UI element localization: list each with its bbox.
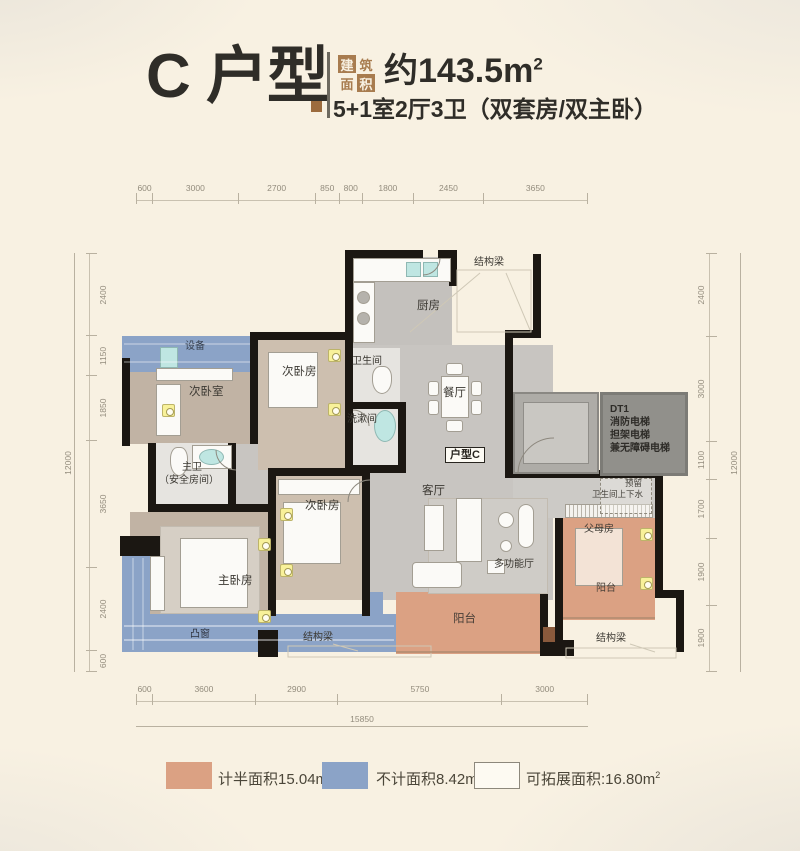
elevator-car — [523, 402, 589, 464]
legend-text: 不计面积8.42m — [376, 771, 478, 788]
dim-value: 1900 — [696, 629, 706, 648]
dining-chair — [471, 381, 482, 396]
room-label-living: 客厅 — [422, 485, 445, 498]
elevator-type: 担架电梯 — [610, 429, 685, 442]
sofa-horizontal — [412, 562, 462, 588]
unit-tag: 户型C — [445, 447, 485, 463]
wall — [676, 590, 684, 652]
dim-value: 5750 — [338, 684, 501, 694]
layout-subtitle: 5+1室2厅3卫（双套房/双主卧） — [333, 97, 657, 122]
kitchen-sink-right — [423, 262, 438, 277]
wardrobe-bedroom-left — [156, 368, 233, 381]
room-label-parents: 父母房 — [584, 524, 614, 535]
wall — [268, 468, 370, 476]
legend-swatch-half-area — [166, 762, 212, 789]
washbasin-washroom — [374, 410, 396, 442]
area-number: 约143.5m — [384, 52, 533, 90]
wall — [540, 640, 574, 656]
equipment-ac-unit — [160, 347, 178, 368]
electrical-marker — [280, 564, 293, 577]
room-label-bedroom-top: 次卧房 — [282, 366, 317, 379]
built-area-value: 约143.5m2 — [384, 54, 543, 88]
legend-label-excluded-area: 不计面积8.42m2 — [376, 768, 483, 789]
area-badge: 建 筑 面 积 — [338, 55, 375, 92]
dresser-master-bedroom — [150, 556, 165, 611]
dining-chair — [428, 381, 439, 396]
wall — [148, 443, 156, 511]
wall — [250, 332, 350, 340]
dim-value: 1100 — [696, 451, 706, 469]
dimension-total-bottom: 15850 — [136, 726, 588, 727]
dim-total-value: 12000 — [63, 451, 73, 475]
dim-total-value: 12000 — [729, 451, 739, 475]
wall — [398, 402, 406, 472]
badge-char: 筑 — [357, 55, 375, 73]
bed-bedroom-top — [268, 352, 318, 408]
wall — [362, 468, 370, 616]
title-divider — [327, 52, 330, 118]
dim-value: 2400 — [696, 285, 706, 304]
dim-value: 2400 — [98, 599, 108, 618]
dim-value: 850 — [316, 183, 339, 193]
label-beam-bottom-left: 结构梁 — [303, 632, 333, 643]
dim-value: 1700 — [696, 500, 706, 519]
dim-value: 1850 — [98, 399, 108, 418]
room-label-master-bath: 主卫 — [182, 462, 202, 473]
lounge-chair — [518, 504, 534, 548]
side-table — [498, 512, 514, 528]
label-bay-window: 凸窗 — [190, 629, 210, 640]
dim-value: 2700 — [239, 183, 315, 193]
dining-chair — [428, 400, 439, 415]
dim-value: 2400 — [98, 285, 108, 304]
area-superscript: 2 — [533, 55, 542, 74]
stove-burner — [357, 291, 370, 304]
electrical-marker — [280, 508, 293, 521]
kitchen-sink-left — [406, 262, 421, 277]
legend-swatch-excluded-area — [322, 762, 368, 789]
wall — [555, 518, 563, 642]
electrical-marker — [162, 404, 175, 417]
electrical-marker — [328, 403, 341, 416]
bed-parents-room — [575, 528, 623, 586]
label-reserved-line2: 卫生间上下水 — [592, 490, 643, 499]
wall — [533, 254, 541, 338]
dim-value: 3650 — [484, 183, 587, 193]
electrical-marker — [328, 349, 341, 362]
dining-chair — [446, 420, 463, 432]
room-label-multi-hall: 多功能厅 — [494, 559, 534, 570]
wall — [505, 330, 513, 396]
dim-value: 1800 — [363, 183, 413, 193]
sofa-vertical — [456, 498, 482, 562]
electrical-marker — [640, 577, 653, 590]
room-label-equipment: 设备 — [185, 341, 205, 352]
legend-text: 可拓展面积:16.80m — [526, 771, 655, 788]
legend-sup: 2 — [655, 770, 660, 780]
side-table — [500, 540, 512, 552]
dining-chair — [471, 400, 482, 415]
unit-name: C 户型 — [146, 42, 328, 111]
washbasin-master-bath — [199, 449, 224, 465]
label-beam-top: 结构梁 — [474, 257, 504, 268]
dimension-total-left: 12000 — [74, 253, 75, 672]
room-label-master-bath-sub: （安全房间） — [159, 475, 219, 486]
elevator-info-box: DT1 消防电梯 担架电梯 兼无障碍电梯 — [600, 392, 688, 476]
dim-value: 3000 — [696, 379, 706, 398]
elevator-id: DT1 — [610, 403, 685, 416]
room-label-washroom: 洗漱间 — [347, 414, 377, 425]
dim-value: 600 — [137, 183, 152, 193]
wardrobe-bedroom-mid — [278, 479, 360, 495]
room-label-dining: 餐厅 — [443, 387, 466, 400]
dining-chair — [446, 363, 463, 375]
dim-total-value: 15850 — [136, 714, 588, 724]
label-balcony-right: 阳台 — [596, 583, 616, 594]
elevator-type: 兼无障碍电梯 — [610, 442, 685, 455]
dim-value: 1150 — [98, 347, 108, 365]
label-reserved-line1: 预留 — [625, 479, 642, 488]
dim-value: 3000 — [502, 684, 587, 694]
tv-cabinet — [424, 505, 444, 551]
room-label-bathroom: 卫生间 — [352, 356, 382, 367]
dimension-column-right: 2400 3000 1100 1700 1900 1900 — [706, 253, 717, 672]
wall — [122, 358, 130, 446]
label-beam-bottom-right: 结构梁 — [596, 633, 626, 644]
legend-swatch-expandable-area — [474, 762, 520, 789]
dim-value: 3650 — [98, 494, 108, 513]
dimension-total-right: 12000 — [740, 253, 741, 672]
badge-char: 面 — [338, 74, 356, 92]
wall — [120, 536, 160, 556]
dimension-column-left: 2400 1150 1850 3650 2400 600 — [86, 253, 97, 672]
title-dot-decoration — [311, 101, 322, 112]
room-label-bedroom-left: 次卧室 — [189, 386, 224, 399]
toilet-bathroom — [372, 366, 392, 394]
page-title: C 户型 — [146, 46, 328, 108]
legend-text: 计半面积15.04m — [218, 771, 328, 788]
legend-label-half-area: 计半面积15.04m2 — [218, 768, 333, 789]
stove-burner — [357, 312, 370, 325]
dim-value: 3600 — [153, 684, 255, 694]
dim-value: 1900 — [696, 563, 706, 582]
electrical-marker — [258, 610, 271, 623]
dimension-row-bottom: 600 3600 2900 5750 3000 — [136, 694, 588, 705]
badge-char: 积 — [357, 74, 375, 92]
dim-value: 2900 — [256, 684, 338, 694]
room-label-kitchen: 厨房 — [417, 300, 440, 313]
dim-value: 2450 — [414, 183, 483, 193]
room-label-master-bedroom: 主卧房 — [218, 575, 253, 588]
wall — [258, 630, 278, 657]
wall — [148, 504, 276, 512]
bed-master-bedroom — [180, 538, 248, 608]
floorplan-page: C 户型 建 筑 面 积 约143.5m2 5+1室2厅3卫（双套房/双主卧） — [0, 0, 800, 851]
dim-value: 3000 — [153, 183, 238, 193]
badge-char: 建 — [338, 55, 356, 73]
room-label-bedroom-mid: 次卧房 — [305, 500, 340, 513]
legend-label-expandable-area: 可拓展面积:16.80m2 — [526, 768, 660, 789]
wall — [345, 402, 406, 409]
dim-value: 600 — [98, 654, 108, 668]
wall — [655, 470, 663, 596]
dim-value: 800 — [340, 183, 362, 193]
wall — [505, 390, 513, 478]
dimension-row-top: 600 3000 2700 850 800 1800 2450 3650 — [136, 193, 588, 204]
electrical-marker — [640, 528, 653, 541]
electrical-marker — [258, 538, 271, 551]
wall — [250, 332, 258, 444]
wall — [345, 250, 423, 258]
label-balcony-main: 阳台 — [453, 613, 476, 626]
dim-value: 600 — [137, 684, 152, 694]
elevator-type: 消防电梯 — [610, 416, 685, 429]
